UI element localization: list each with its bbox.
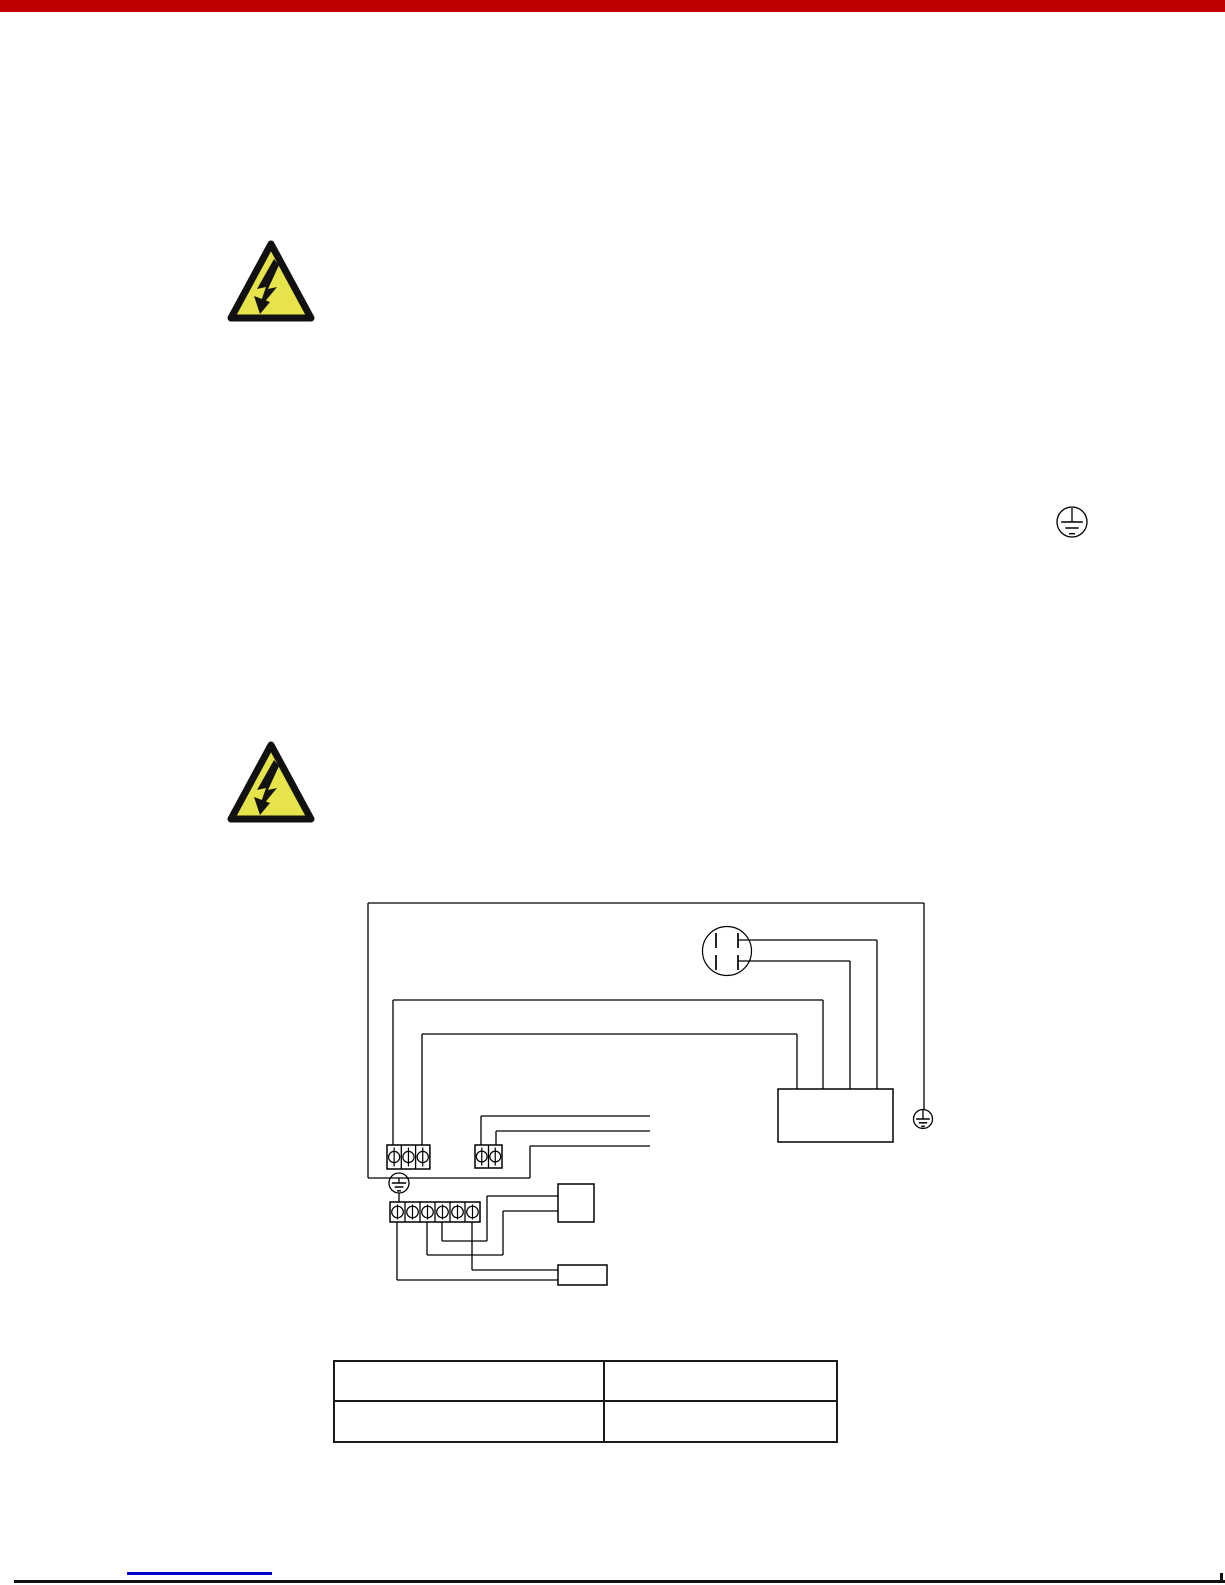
table-cell xyxy=(335,1362,605,1402)
table-cell xyxy=(605,1362,836,1402)
table-cell xyxy=(605,1402,836,1442)
manual-page xyxy=(0,0,1225,1585)
wiring-diagram xyxy=(0,0,1225,1585)
table-cell xyxy=(335,1402,605,1442)
page-bottom-rule xyxy=(14,1580,1225,1583)
dual-capacitor-circle xyxy=(703,927,752,976)
specification-table xyxy=(333,1360,838,1443)
control-module-box xyxy=(778,1089,893,1142)
component-box-upper xyxy=(558,1184,594,1222)
component-box-lower xyxy=(558,1265,607,1285)
page-corner-tick xyxy=(1220,1573,1223,1581)
hyperlink-underline[interactable] xyxy=(127,1572,272,1575)
